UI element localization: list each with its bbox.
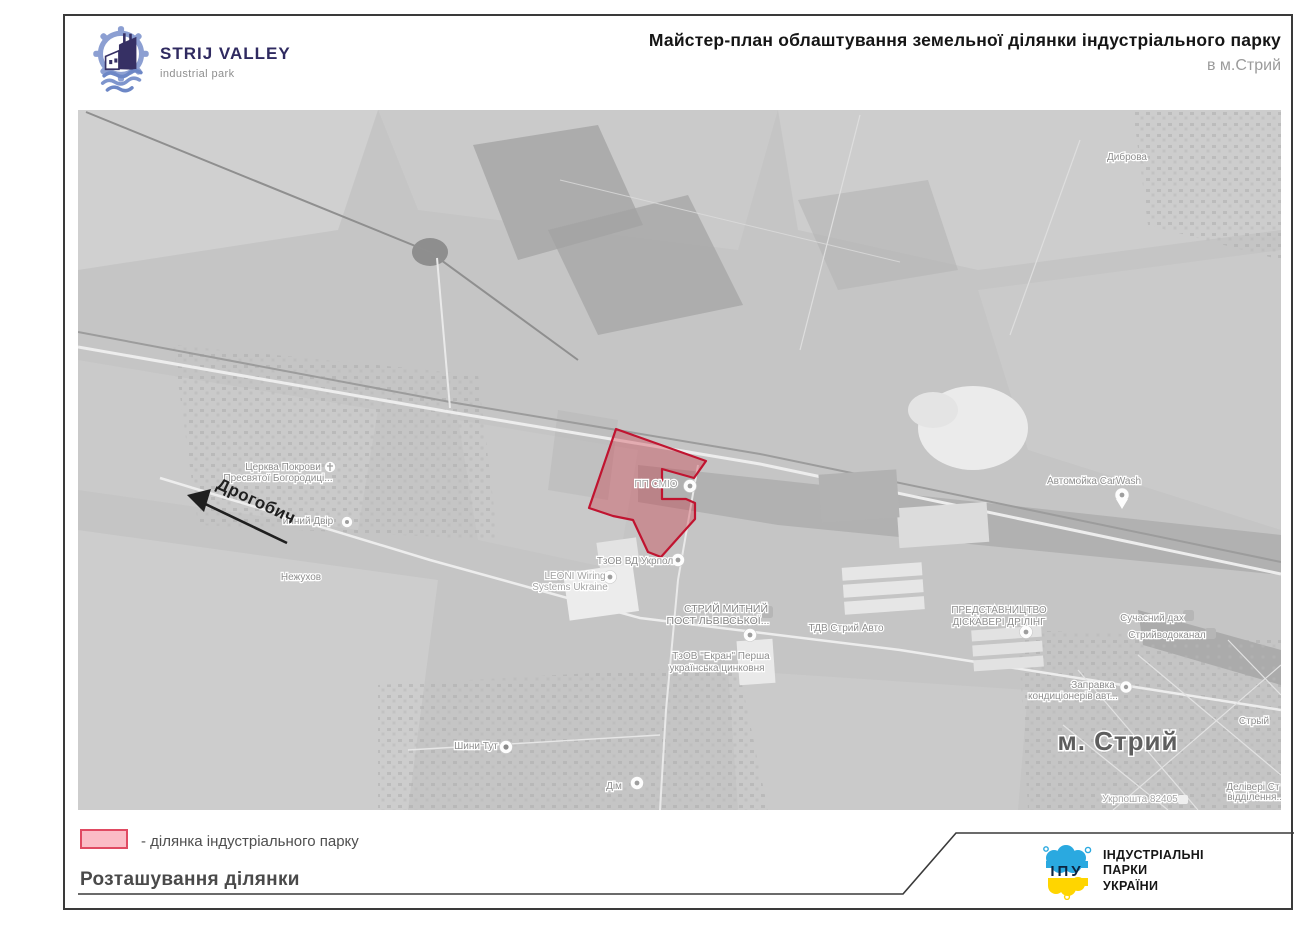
ipu-line2: ПАРКИ: [1103, 863, 1204, 879]
map-label: відділення...: [1227, 792, 1281, 803]
map-label: Systems Ukraine: [532, 582, 608, 593]
legend-swatch: [80, 829, 128, 849]
strij-valley-logo-text: STRIJ VALLEY industrial park: [160, 44, 291, 80]
city-label: м. Стрий: [1057, 726, 1178, 756]
satellite-map: Диброва Церква Покрови Пресвятої Богород…: [78, 110, 1281, 810]
map-pin: [1120, 681, 1132, 693]
map-label: Заправка: [1071, 680, 1115, 691]
map-label: ТзОВ ВД Укрпол: [597, 556, 674, 567]
map-pin: [631, 777, 644, 790]
map-label: СТРИЙ МИТНИЙ: [684, 602, 768, 615]
badge-pin: [1183, 610, 1194, 621]
map-pin: [500, 741, 513, 754]
legend-label: - ділянка індустріального парку: [141, 833, 359, 850]
ipu-line1: ІНДУСТРІАЛЬНІ: [1103, 848, 1204, 864]
strij-valley-logo-icon: [84, 22, 158, 98]
ipu-logo-icon: ІПУ: [1040, 842, 1094, 900]
map-label: ПП СМІО: [634, 479, 677, 490]
ipu-logo-text: ІНДУСТРІАЛЬНІ ПАРКИ УКРАЇНИ: [1103, 848, 1204, 895]
map-label: ПОСТ ЛЬВІВСЬКОЇ...: [667, 615, 770, 627]
footer-caption: Розташування ділянки: [80, 869, 300, 891]
map-pin: [684, 480, 697, 493]
map-label: Нежухов: [281, 572, 321, 583]
page-subtitle: в м.Стрий: [521, 57, 1281, 75]
map-pin: [342, 517, 353, 528]
page-title: Майстер-план облаштування земельної діля…: [521, 30, 1281, 51]
map-pin: [672, 554, 685, 567]
gear-dot: [1085, 847, 1090, 852]
map-label: ТзОВ "Екран" Перша: [672, 651, 770, 662]
map-label: Автомойка CarWash: [1047, 476, 1141, 487]
map-label: Диброва: [1107, 151, 1147, 163]
industrial-parks-ukraine-logo: ІПУ ІНДУСТРІАЛЬНІ ПАРКИ УКРАЇНИ: [1040, 842, 1204, 900]
map-canvas: Диброва Церква Покрови Пресвятої Богород…: [78, 110, 1281, 810]
map-label: Стрийводоканал: [1128, 630, 1206, 641]
logo-title: STRIJ VALLEY: [160, 44, 291, 64]
map-label: ПРЕДСТАВНИЦТВО: [951, 605, 1047, 616]
header-titles: Майстер-план облаштування земельної діля…: [521, 30, 1281, 75]
plan-sheet: { "header": { "logo": { "title": "STRIJ …: [0, 0, 1310, 926]
map-label: ТДВ Стрий Авто: [808, 623, 884, 634]
map-label: кондиціонерів авт...: [1028, 691, 1118, 702]
map-label: Шини Тут: [454, 741, 498, 752]
logo-subtitle: industrial park: [160, 68, 291, 80]
map-label: українська цинковня: [669, 663, 764, 674]
gear-dot: [1044, 847, 1048, 851]
map-label: Дім: [606, 781, 622, 792]
map-label: LEONI Wiring: [544, 571, 605, 582]
map-pin: [744, 629, 757, 642]
map-label: Укрпошта 82405: [1102, 794, 1178, 805]
map-label: Стрый: [1239, 716, 1269, 727]
map-label: Сучасний дах: [1120, 613, 1184, 624]
map-label: ДІСКАВЕРІ ДРІЛІНГ: [952, 617, 1046, 628]
church-pin: [325, 462, 336, 473]
badge-pin: [1178, 795, 1188, 804]
map-label: Церква Покрови: [245, 462, 321, 473]
badge-pin: [1205, 628, 1216, 639]
ipu-line3: УКРАЇНИ: [1103, 879, 1204, 895]
ipu-abbr: ІПУ: [1050, 863, 1083, 880]
